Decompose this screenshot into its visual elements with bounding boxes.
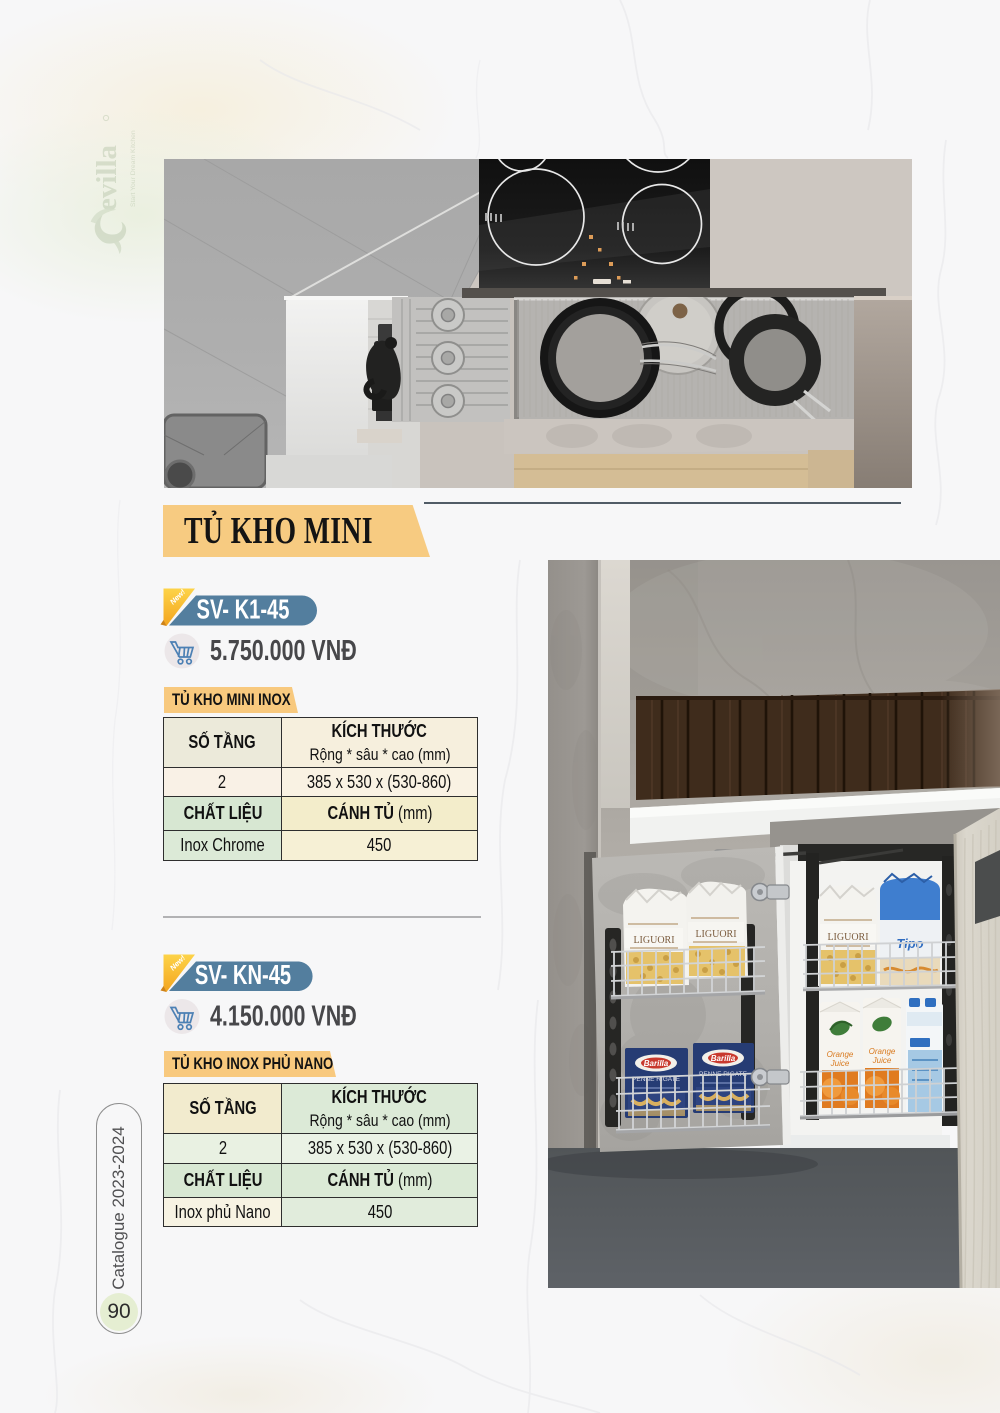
svg-text:Barilla: Barilla xyxy=(644,1059,669,1068)
svg-text:Orange: Orange xyxy=(827,1050,854,1059)
svg-text:LIGUORI: LIGUORI xyxy=(633,935,674,946)
svg-text:SV- K1-45: SV- K1-45 xyxy=(197,594,290,625)
svg-text:LIGUORI: LIGUORI xyxy=(695,929,736,940)
svg-text:4.150.000 VNĐ: 4.150.000 VNĐ xyxy=(210,1000,357,1032)
svg-text:Start Your Dream Kitchen: Start Your Dream Kitchen xyxy=(130,130,137,207)
svg-text:evilla: evilla xyxy=(91,144,123,211)
svg-text:Juice: Juice xyxy=(872,1056,892,1065)
svg-text:Barilla: Barilla xyxy=(711,1054,736,1063)
svg-text:5.750.000 VNĐ: 5.750.000 VNĐ xyxy=(210,635,357,667)
svg-text:Orange: Orange xyxy=(869,1047,896,1056)
svg-text:Juice: Juice xyxy=(830,1059,850,1068)
svg-text:LIGUORI: LIGUORI xyxy=(827,932,868,943)
svg-text:SV- KN-45: SV- KN-45 xyxy=(195,960,291,991)
